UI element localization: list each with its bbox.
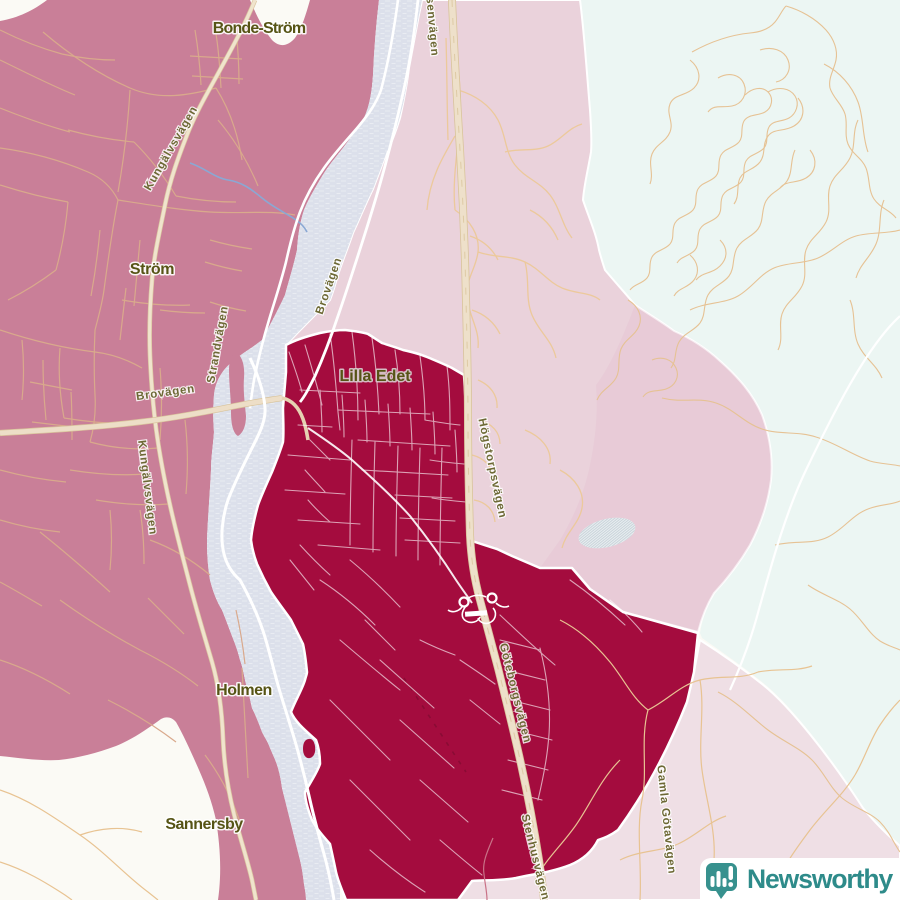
svg-text:Sannersby: Sannersby [165,816,243,833]
svg-text:Ström: Ström [130,261,174,278]
svg-text:Bonde-Ström: Bonde-Ström [213,20,306,37]
svg-text:Lilla Edet: Lilla Edet [339,368,411,385]
svg-text:Holmen: Holmen [216,682,272,699]
svg-text:Newsworthy: Newsworthy [747,864,893,894]
